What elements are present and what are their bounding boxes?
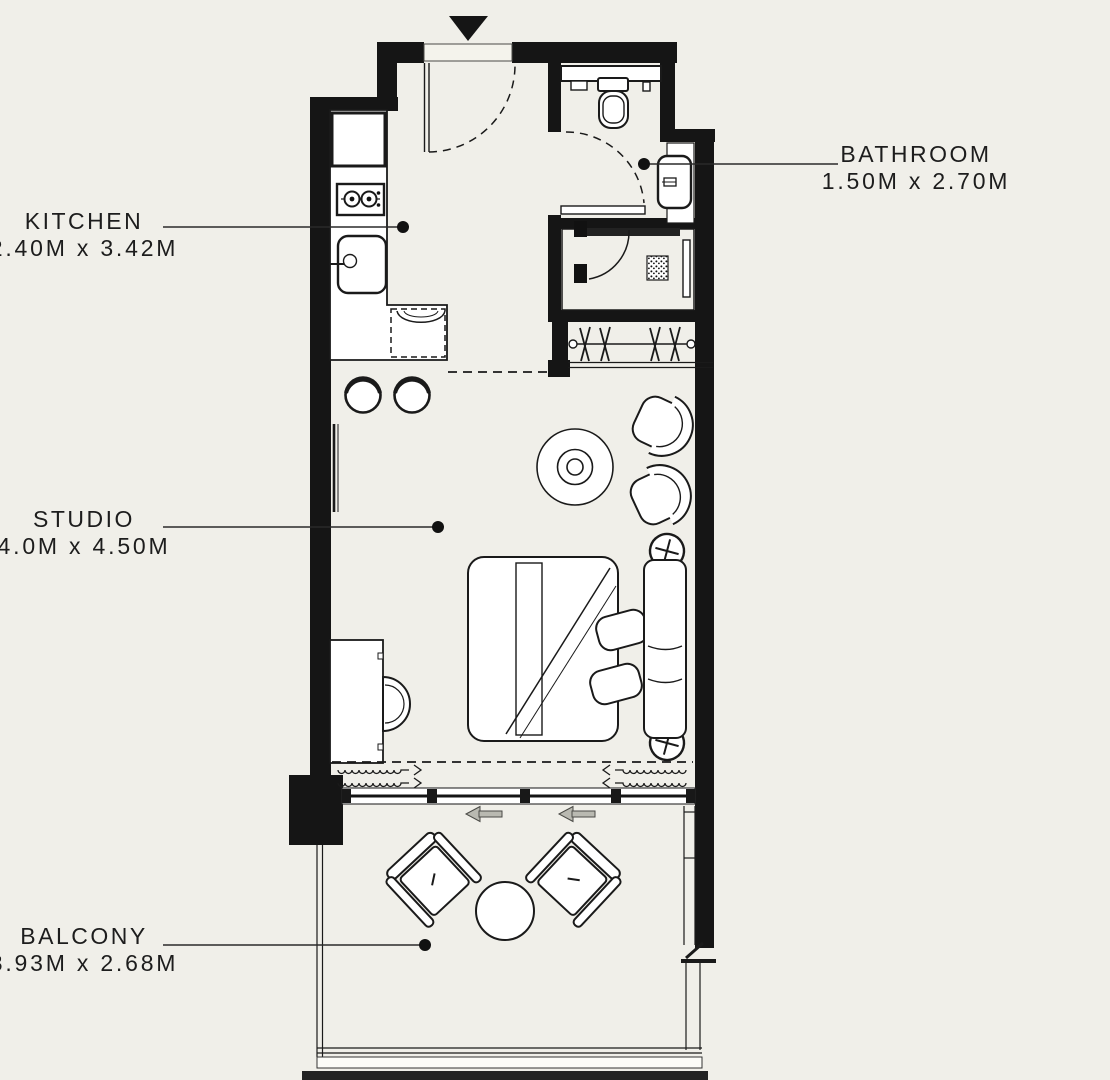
entry-door-threshold	[424, 44, 512, 61]
label-kitchen-name: KITCHEN	[0, 208, 178, 235]
label-leaders	[163, 158, 838, 951]
bathroom-door-leaf	[561, 206, 645, 214]
balcony	[302, 806, 716, 1080]
desk-chair-icon	[383, 677, 410, 731]
desk-icon	[330, 640, 383, 763]
label-balcony-dims: 3.93M x 2.68M	[0, 950, 178, 977]
bed-icon	[468, 557, 686, 741]
stove-icon	[337, 184, 384, 215]
entry-door-swing	[429, 64, 515, 152]
curtain-icon	[338, 765, 686, 788]
label-studio-dims: 4.0M x 4.50M	[0, 533, 170, 560]
label-kitchen: KITCHEN 2.40M x 3.42M	[0, 208, 178, 262]
balcony-corner-column	[289, 775, 343, 845]
label-bathroom: BATHROOM 1.50M x 2.70M	[822, 141, 1011, 195]
toilet-icon	[598, 78, 628, 128]
balcony-railing	[317, 845, 702, 1057]
label-studio: STUDIO 4.0M x 4.50M	[0, 506, 170, 560]
armchair-icon	[623, 455, 701, 535]
label-bathroom-dims: 1.50M x 2.70M	[822, 168, 1011, 195]
kitchen-sink-icon	[329, 236, 386, 293]
label-balcony-name: BALCONY	[0, 923, 178, 950]
balcony-chair-icon	[381, 827, 483, 929]
shower	[562, 221, 694, 310]
sliding-window	[342, 788, 695, 804]
slide-arrow-icon	[466, 807, 595, 822]
label-studio-name: STUDIO	[0, 506, 170, 533]
balcony-table-icon	[476, 882, 534, 940]
label-kitchen-dims: 2.40M x 3.42M	[0, 235, 178, 262]
shower-glass-panel	[683, 240, 690, 297]
fridge-icon	[332, 113, 385, 166]
entry-arrow-icon	[449, 16, 488, 41]
armchair-icon	[625, 386, 703, 466]
rug-icon	[537, 429, 613, 505]
label-bathroom-name: BATHROOM	[822, 141, 1011, 168]
closet	[568, 327, 713, 368]
shower-door-swing	[589, 230, 629, 279]
label-balcony: BALCONY 3.93M x 2.68M	[0, 923, 178, 977]
entry	[424, 16, 515, 152]
bathroom-door-swing	[566, 132, 644, 203]
shower-drain-icon	[647, 256, 668, 280]
studio	[330, 372, 703, 788]
balcony-chair-icon	[524, 827, 626, 929]
